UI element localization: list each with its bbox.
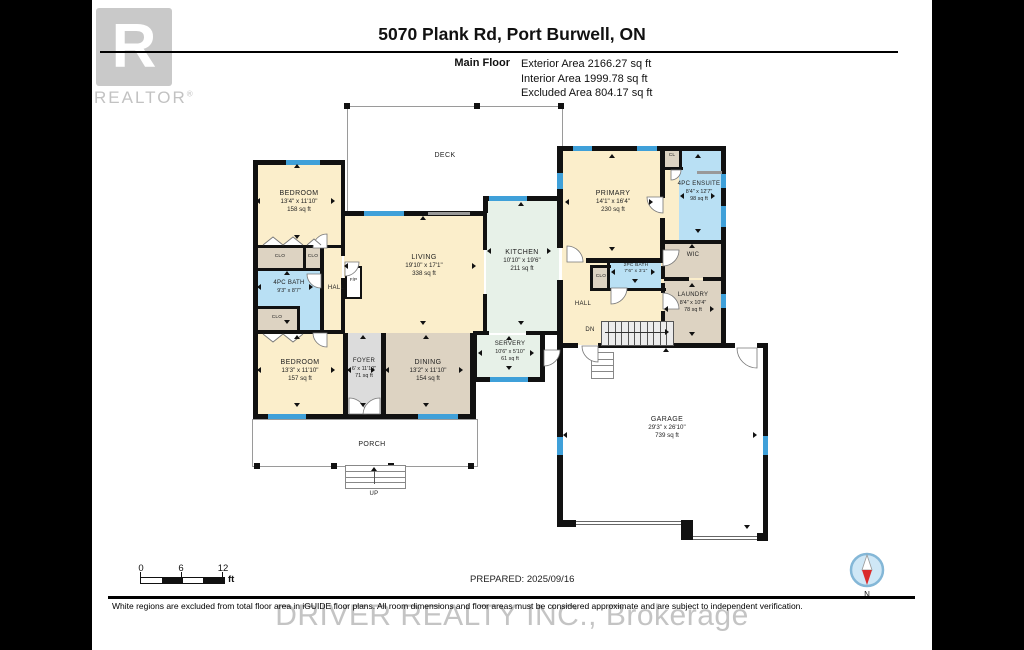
dim-arrow bbox=[711, 193, 715, 199]
room-label-garage-area: 739 sq ft bbox=[648, 432, 685, 440]
room-label-porch-name: PORCH bbox=[358, 440, 385, 449]
room-label-garage-dims: 29'3" x 26'10" bbox=[648, 424, 685, 432]
room-label-bath1-dims: 9'3" x 8'7" bbox=[273, 288, 304, 295]
room-label-servery: SERVERY10'6" x 5'10"61 sq ft bbox=[495, 341, 526, 363]
room-label-hall1-name: HALL bbox=[328, 285, 344, 293]
dim-arrow bbox=[360, 335, 366, 339]
room-label-dining-area: 154 sq ft bbox=[410, 375, 447, 383]
dim-arrow bbox=[744, 525, 750, 529]
room-label-clo1: CLO bbox=[275, 254, 285, 260]
room-label-living-area: 338 sq ft bbox=[405, 270, 442, 278]
dim-arrow bbox=[487, 248, 491, 254]
door-arc bbox=[737, 348, 757, 368]
dim-arrow bbox=[331, 367, 335, 373]
dim-arrow bbox=[506, 336, 512, 340]
dim-arrow bbox=[710, 306, 714, 312]
room-label-bath1-name: 4PC BATH bbox=[273, 280, 304, 288]
room-label-clo3-name: CLO bbox=[272, 315, 282, 321]
porch-up-label: UP bbox=[370, 491, 379, 499]
door-arc bbox=[611, 288, 627, 304]
dim-arrow bbox=[609, 154, 615, 158]
room-label-laundry-area: 78 sq ft bbox=[678, 307, 709, 314]
room-label-laundry-dims: 8'4" x 10'4" bbox=[678, 300, 709, 307]
dim-arrow bbox=[294, 164, 300, 168]
dim-arrow bbox=[565, 199, 569, 205]
room-label-bedroom2: BEDROOM13'3" x 11'10"157 sq ft bbox=[281, 358, 320, 383]
room-label-cl: CL bbox=[669, 153, 676, 159]
room-label-garage: GARAGE29'3" x 26'10"739 sq ft bbox=[648, 415, 685, 440]
room-label-servery-area: 61 sq ft bbox=[495, 356, 526, 363]
dim-arrow bbox=[611, 269, 615, 275]
dim-arrow bbox=[459, 367, 463, 373]
dim-arrow bbox=[478, 350, 482, 356]
room-label-kitchen: KITCHEN10'10" x 19'6"211 sq ft bbox=[503, 248, 540, 273]
room-label-living-dims: 19'10" x 17'1" bbox=[405, 262, 442, 270]
room-label-bath2: 2PC BATH7'6" x 3'1" bbox=[624, 263, 649, 275]
dim-arrow bbox=[284, 320, 290, 324]
room-label-wic: WIC bbox=[687, 252, 700, 260]
room-label-dining: DINING13'2" x 11'10"154 sq ft bbox=[410, 358, 447, 383]
room-label-primary-dims: 14'1" x 16'4" bbox=[596, 198, 631, 206]
room-label-dining-dims: 13'2" x 11'10" bbox=[410, 367, 447, 375]
dim-arrow bbox=[689, 332, 695, 336]
room-label-servery-dims: 10'6" x 5'10" bbox=[495, 349, 526, 356]
room-label-dining-name: DINING bbox=[410, 358, 447, 367]
room-label-hall2-name: HALL bbox=[575, 301, 591, 309]
dim-arrow bbox=[284, 271, 290, 275]
room-label-bath1: 4PC BATH9'3" x 8'7" bbox=[273, 280, 304, 295]
room-label-bedroom2-dims: 13'3" x 11'10" bbox=[281, 367, 320, 375]
dim-arrow bbox=[689, 283, 695, 287]
dim-arrow bbox=[632, 279, 638, 283]
dim-arrow bbox=[371, 367, 375, 373]
room-label-laundry-name: LAUNDRY bbox=[678, 292, 709, 300]
room-label-clo3: CLO bbox=[272, 315, 282, 321]
dim-arrow bbox=[609, 247, 615, 251]
dim-arrow bbox=[472, 263, 476, 269]
dim-arrow bbox=[360, 403, 366, 407]
room-label-laundry: LAUNDRY8'4" x 10'4"78 sq ft bbox=[678, 292, 709, 314]
dim-arrow bbox=[753, 432, 757, 438]
room-label-living: LIVING19'10" x 17'1"338 sq ft bbox=[405, 253, 442, 278]
room-label-clo4: CLO bbox=[596, 274, 606, 280]
room-label-hall1: HALL bbox=[328, 285, 344, 293]
door-arc bbox=[582, 346, 598, 362]
dim-arrow bbox=[256, 198, 260, 204]
room-label-bedroom1: BEDROOM13'4" x 11'10"158 sq ft bbox=[280, 189, 319, 214]
dim-arrow bbox=[294, 335, 300, 339]
door-arc bbox=[567, 246, 583, 262]
room-label-primary-area: 230 sq ft bbox=[596, 206, 631, 214]
room-label-deck: DECK bbox=[434, 151, 455, 160]
door-swings-layer bbox=[0, 0, 1024, 650]
dim-arrow bbox=[530, 350, 534, 356]
room-label-kitchen-name: KITCHEN bbox=[503, 248, 540, 257]
room-label-servery-name: SERVERY bbox=[495, 341, 526, 349]
dim-arrow bbox=[518, 321, 524, 325]
dim-arrow bbox=[680, 193, 684, 199]
room-label-foyer-area: 71 sq ft bbox=[352, 373, 376, 380]
dim-arrow bbox=[257, 284, 261, 290]
dim-arrow bbox=[651, 269, 655, 275]
dim-arrow bbox=[563, 432, 567, 438]
room-label-ensuite-name: 4PC ENSUITE bbox=[678, 181, 721, 189]
dim-arrow bbox=[518, 202, 524, 206]
dim-arrow bbox=[347, 367, 351, 373]
door-arc bbox=[671, 170, 681, 180]
door-arc bbox=[544, 350, 560, 366]
up-arrow-head bbox=[371, 467, 377, 471]
room-label-clo2-name: CLO bbox=[308, 254, 318, 260]
room-label-clo4-name: CLO bbox=[596, 274, 606, 280]
room-label-garage-name: GARAGE bbox=[648, 415, 685, 424]
room-label-wic-name: WIC bbox=[687, 252, 700, 260]
room-label-ensuite: 4PC ENSUITE8'4" x 12'7"98 sq ft bbox=[678, 181, 721, 203]
room-label-living-name: LIVING bbox=[405, 253, 442, 262]
dim-arrow bbox=[385, 367, 389, 373]
up-label: UP bbox=[370, 491, 379, 499]
dim-arrow bbox=[695, 229, 701, 233]
dim-arrow bbox=[294, 235, 300, 239]
room-label-clo2: CLO bbox=[308, 254, 318, 260]
dim-arrow bbox=[506, 366, 512, 370]
floorplan-page: { "header": { "logo_letter": "R", "logo_… bbox=[0, 0, 1024, 650]
room-label-bedroom2-area: 157 sq ft bbox=[281, 375, 320, 383]
room-label-bedroom2-name: BEDROOM bbox=[281, 358, 320, 367]
room-label-clo1-name: CLO bbox=[275, 254, 285, 260]
stairs-dn-label: DN bbox=[585, 327, 594, 335]
dim-arrow bbox=[344, 263, 348, 269]
room-label-kitchen-dims: 10'10" x 19'6" bbox=[503, 257, 540, 265]
dim-arrow bbox=[664, 306, 668, 312]
dn-label: DN bbox=[585, 327, 594, 335]
room-label-foyer-name: FOYER bbox=[352, 358, 376, 366]
room-label-deck-name: DECK bbox=[434, 151, 455, 160]
dim-arrow bbox=[331, 198, 335, 204]
room-label-bath2-dims: 7'6" x 3'1" bbox=[624, 269, 649, 275]
dim-arrow bbox=[689, 244, 695, 248]
dim-arrow bbox=[257, 367, 261, 373]
room-label-bedroom1-area: 158 sq ft bbox=[280, 206, 319, 214]
room-label-bedroom1-name: BEDROOM bbox=[280, 189, 319, 198]
stairs-arrow-head bbox=[665, 329, 669, 335]
dim-arrow bbox=[695, 154, 701, 158]
room-label-kitchen-area: 211 sq ft bbox=[503, 265, 540, 273]
room-label-cl-name: CL bbox=[669, 153, 676, 159]
room-label-bedroom1-dims: 13'4" x 11'10" bbox=[280, 198, 319, 206]
dim-arrow bbox=[423, 335, 429, 339]
door-arc bbox=[663, 250, 679, 266]
dim-arrow bbox=[294, 403, 300, 407]
room-label-primary-name: PRIMARY bbox=[596, 189, 631, 198]
dim-arrow bbox=[420, 216, 426, 220]
room-label-primary: PRIMARY14'1" x 16'4"230 sq ft bbox=[596, 189, 631, 214]
dim-arrow bbox=[423, 403, 429, 407]
room-label-porch: PORCH bbox=[358, 440, 385, 449]
dim-arrow bbox=[663, 348, 669, 352]
room-label-hall2: HALL bbox=[575, 301, 591, 309]
dim-arrow bbox=[420, 321, 426, 325]
door-arc bbox=[313, 333, 327, 347]
dim-arrow bbox=[309, 284, 313, 290]
dim-arrow bbox=[547, 248, 551, 254]
dim-arrow bbox=[649, 199, 653, 205]
